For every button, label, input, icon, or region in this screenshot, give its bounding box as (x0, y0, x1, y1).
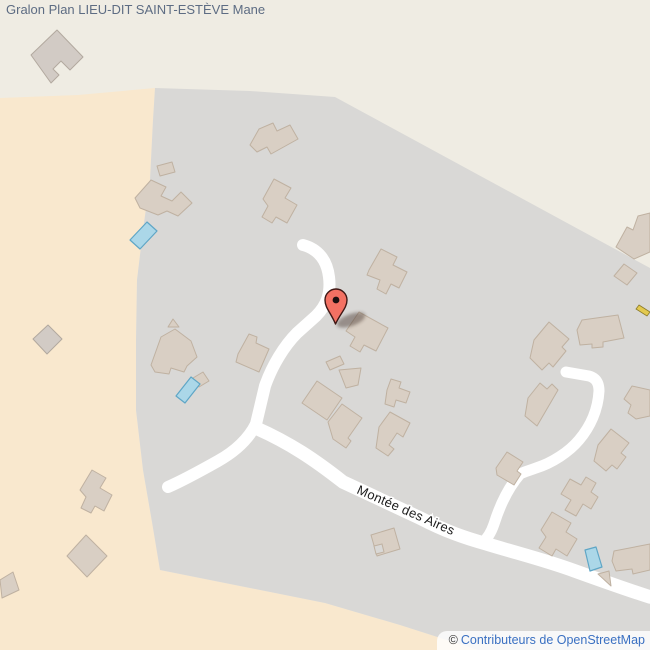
map-attribution: ©Contributeurs de OpenStreetMap (437, 631, 650, 650)
map-viewport[interactable]: Gralon Plan LIEU-DIT SAINT-ESTÈVE Mane (0, 0, 650, 650)
map-canvas[interactable]: Montée des Aires (0, 0, 650, 650)
building (31, 30, 83, 83)
building-notch (374, 544, 384, 554)
marker-center-dot (333, 297, 340, 304)
building (616, 213, 650, 259)
copyright-symbol: © (449, 633, 458, 647)
page-title: Gralon Plan LIEU-DIT SAINT-ESTÈVE Mane (0, 0, 271, 19)
openstreetmap-attribution-link[interactable]: Contributeurs de OpenStreetMap (461, 633, 645, 647)
